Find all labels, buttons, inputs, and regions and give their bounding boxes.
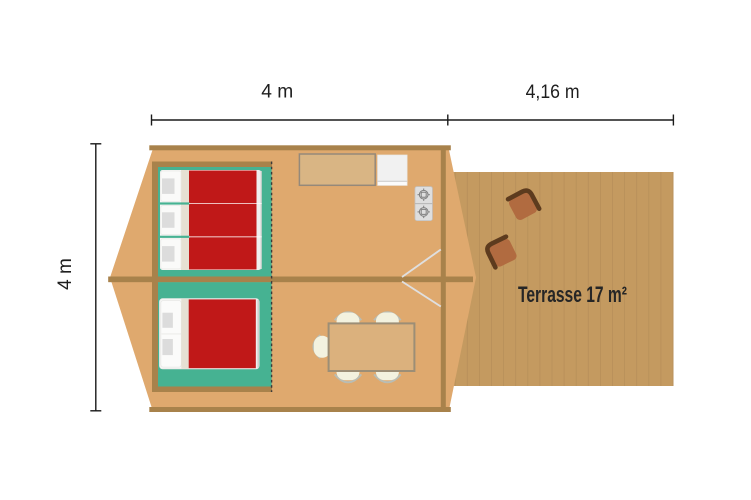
svg-text:Terrasse 17 m²: Terrasse 17 m² bbox=[518, 282, 627, 307]
svg-text:4 m: 4 m bbox=[261, 82, 293, 103]
svg-text:4,16 m: 4,16 m bbox=[526, 82, 580, 103]
svg-text:4 m: 4 m bbox=[55, 258, 76, 290]
